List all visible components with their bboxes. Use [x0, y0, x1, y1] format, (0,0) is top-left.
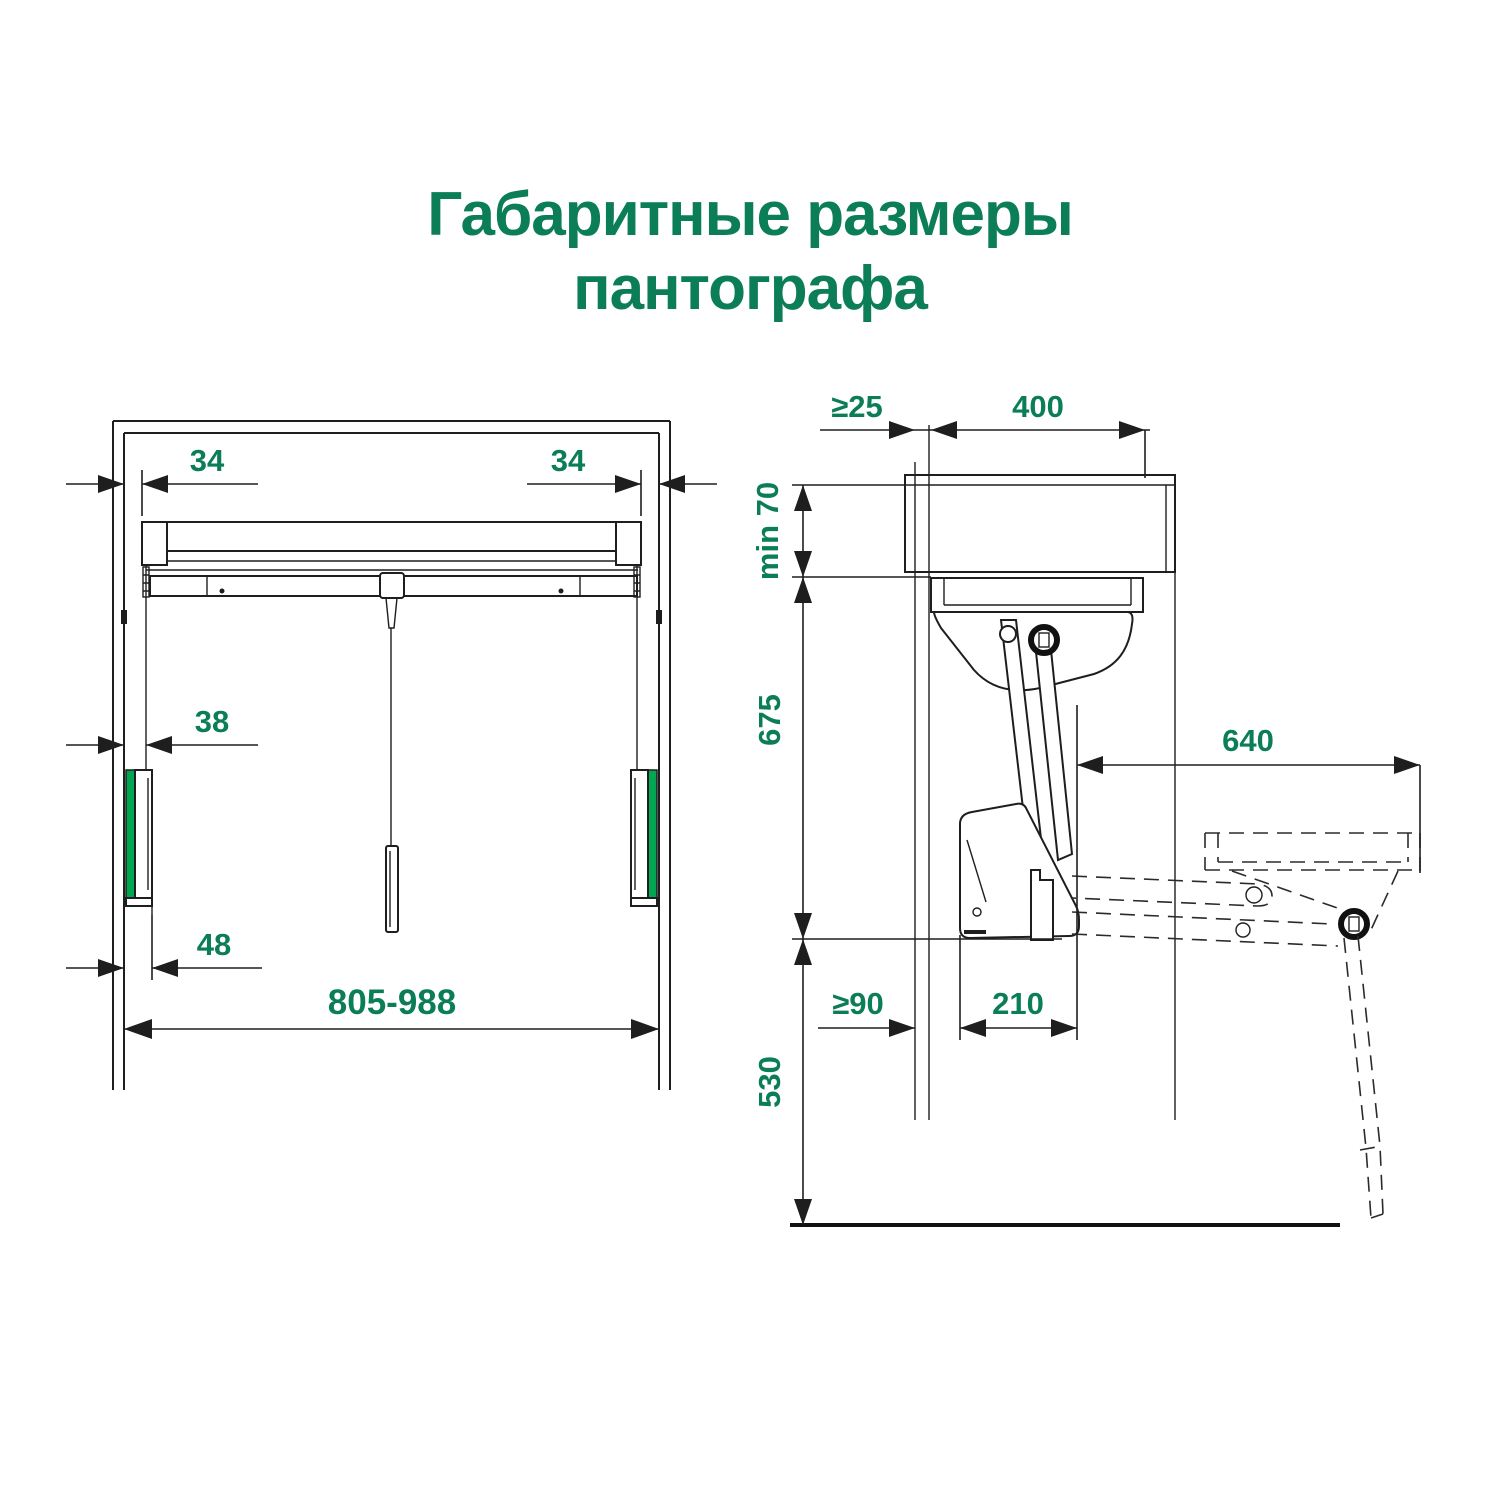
dim-label-mech-height: 675	[752, 694, 787, 746]
dim-label-cable-offset: 38	[195, 704, 229, 739]
page-title-line1: Габаритные размеры	[427, 180, 1073, 249]
dim-offset-left: 34	[66, 443, 258, 516]
gas-spring-right	[631, 770, 657, 906]
side-wall-panel	[915, 425, 1175, 1120]
side-channel-raised	[931, 578, 1143, 612]
pantograph-top-rail	[142, 522, 641, 570]
dim-offset-right: 34	[527, 443, 717, 516]
dim-label-top-clearance: min 70	[750, 482, 785, 580]
dim-label-wall-gap: ≥25	[831, 389, 883, 424]
dim-label-back-clearance: ≥90	[832, 986, 884, 1021]
dim-top-row: ≥25 400	[820, 389, 1150, 478]
pantograph-dimensions-page: Габаритные размеры пантографа	[0, 0, 1500, 1499]
dim-label-depth: 400	[1012, 389, 1064, 424]
dim-label-width-range: 805-988	[328, 983, 456, 1022]
pull-rod	[386, 598, 398, 932]
gas-spring-left	[126, 770, 152, 915]
side-mechanism	[934, 612, 1133, 940]
side-view-drawing: min 70 675 530 ≥25 400 640	[740, 380, 1460, 1260]
page-title: Габаритные размеры пантографа	[0, 178, 1500, 326]
page-title-line2: пантографа	[573, 254, 927, 323]
dim-label-floor-height: 530	[752, 1056, 787, 1108]
dim-label-extension: 640	[1222, 723, 1274, 758]
hanger-tube	[150, 573, 637, 598]
dim-cable-offset: 38	[66, 704, 258, 754]
front-view-drawing: 34 34 38 48	[60, 380, 760, 1100]
side-lowered-dashed	[1072, 833, 1420, 1218]
dim-label-offset-left: 34	[190, 443, 225, 478]
dim-unit-offset: 48	[66, 915, 262, 980]
lowered-bolt	[1341, 911, 1367, 937]
dim-label-unit-offset: 48	[197, 927, 231, 962]
dim-extension: 640	[1077, 705, 1420, 1040]
handle-rod-dashed	[1344, 938, 1371, 1218]
dim-width-range: 805-988	[124, 983, 659, 1039]
dim-label-offset-right: 34	[551, 443, 586, 478]
lift-hook	[1031, 870, 1053, 940]
dim-label-mech-depth: 210	[992, 986, 1044, 1021]
gas-spring-left-green-strip	[126, 770, 135, 898]
dim-bottom-row: ≥90 210	[818, 935, 1077, 1040]
gas-spring-right-green-strip	[648, 770, 657, 898]
arm-pivot	[1000, 626, 1016, 642]
side-top-box	[905, 475, 1175, 572]
